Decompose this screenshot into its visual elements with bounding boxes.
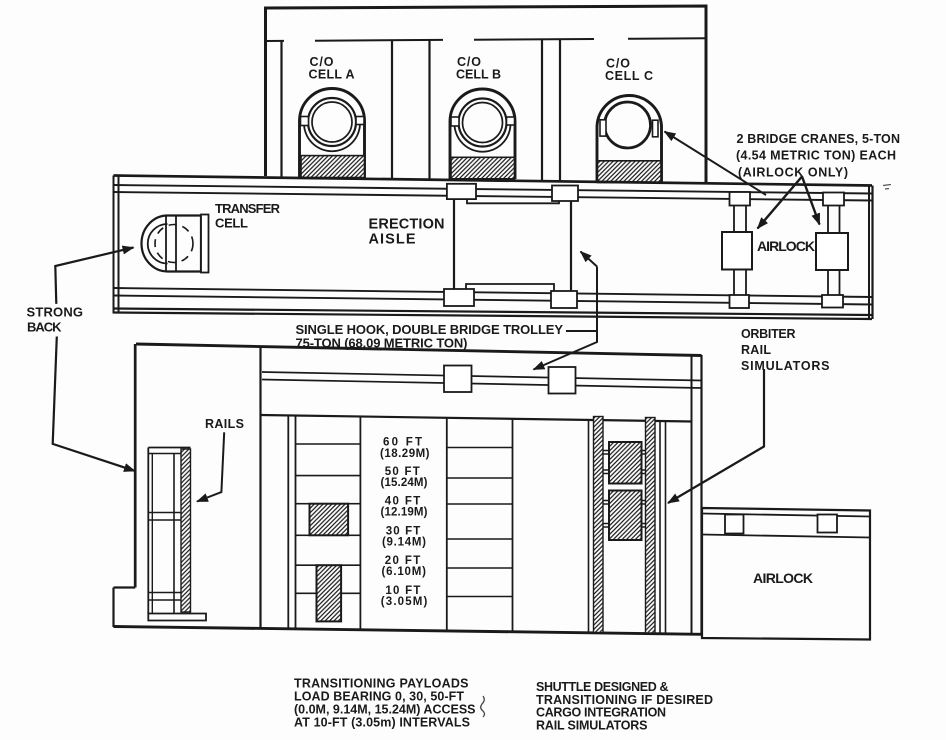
svg-text:SIMULATORS: SIMULATORS <box>741 359 830 373</box>
svg-text:CELL: CELL <box>215 216 248 231</box>
svg-text:TRANSFER: TRANSFER <box>215 201 281 216</box>
svg-text:AIRLOCK: AIRLOCK <box>753 570 813 586</box>
svg-text:75-TON (68.09 METRIC TON): 75-TON (68.09 METRIC TON) <box>296 336 468 351</box>
svg-text:(18.29M): (18.29M) <box>380 448 430 460</box>
svg-text:(9.14M): (9.14M) <box>382 537 426 549</box>
svg-text:AT 10-FT (3.05m) INTERVALS: AT 10-FT (3.05m) INTERVALS <box>294 716 470 730</box>
svg-text:ERECTION: ERECTION <box>369 217 445 233</box>
svg-text:RAIL SIMULATORS: RAIL SIMULATORS <box>536 719 648 733</box>
svg-text:CELL B: CELL B <box>456 68 501 82</box>
svg-text:TRANSITIONING PAYLOADS: TRANSITIONING PAYLOADS <box>294 677 469 691</box>
svg-text:BACK: BACK <box>27 320 62 335</box>
svg-text:CARGO INTEGRATION: CARGO INTEGRATION <box>536 706 666 720</box>
svg-text:(AIRLOCK ONLY): (AIRLOCK ONLY) <box>738 166 848 180</box>
svg-text:ORBITER: ORBITER <box>741 327 796 341</box>
svg-text:STRONG: STRONG <box>27 305 84 320</box>
svg-text:CELL A: CELL A <box>309 68 355 82</box>
svg-text:SHUTTLE DESIGNED &: SHUTTLE DESIGNED & <box>536 680 669 694</box>
svg-text:(15.24M): (15.24M) <box>381 477 428 489</box>
svg-text:(0.0M, 9.14M, 15.24M) ACCESS: (0.0M, 9.14M, 15.24M) ACCESS <box>294 703 476 717</box>
svg-text:CELL C: CELL C <box>605 69 653 83</box>
svg-text:(4.54 METRIC TON) EACH: (4.54 METRIC TON) EACH <box>736 149 896 163</box>
svg-text:AIRLOCK: AIRLOCK <box>757 238 815 254</box>
svg-text:AISLE: AISLE <box>369 231 416 247</box>
svg-text:60 FT: 60 FT <box>383 437 422 449</box>
svg-text:RAIL: RAIL <box>741 343 771 357</box>
svg-text:2 BRIDGE CRANES, 5-TON: 2 BRIDGE CRANES, 5-TON <box>737 132 901 146</box>
svg-text:(12.19M): (12.19M) <box>381 507 428 519</box>
svg-text:LOAD BEARING 0, 30, 50-FT: LOAD BEARING 0, 30, 50-FT <box>294 690 464 704</box>
svg-text:(6.10M): (6.10M) <box>382 566 427 578</box>
svg-text:RAILS: RAILS <box>205 417 244 431</box>
